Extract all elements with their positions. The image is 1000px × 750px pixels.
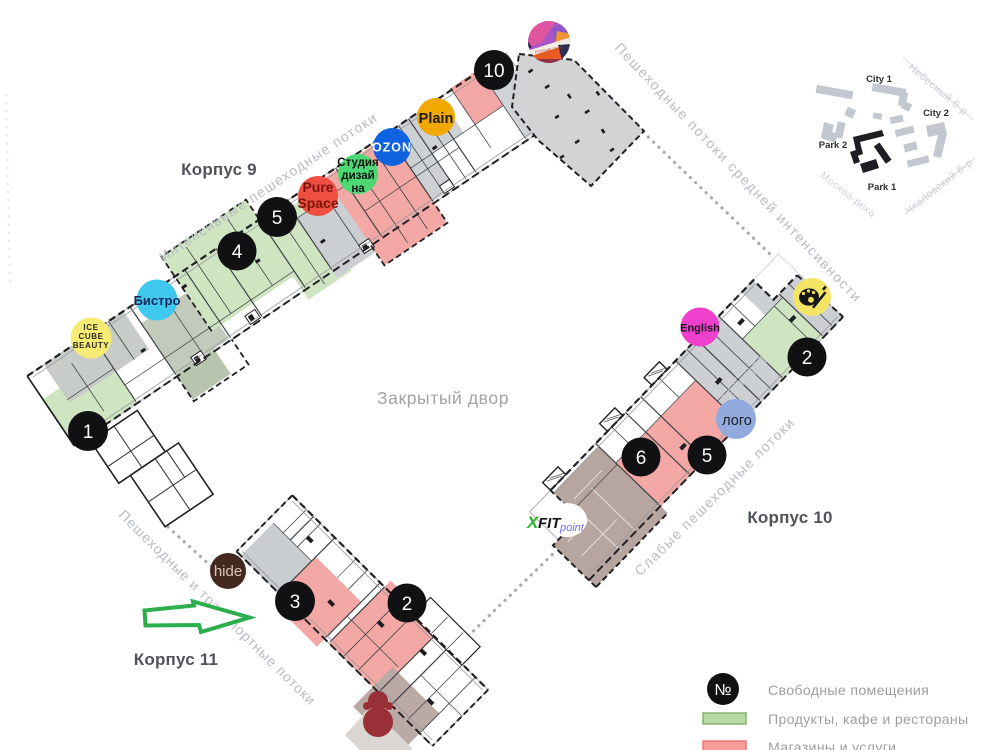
svg-text:5: 5 [272,208,283,229]
svg-text:point: point [559,522,585,534]
svg-text:Магазины и услуги: Магазины и услуги [768,740,896,750]
svg-text:Pure: Pure [302,179,333,195]
svg-text:Park 2: Park 2 [819,140,848,151]
svg-text:City 1: City 1 [866,74,893,85]
svg-text:№: № [714,682,731,699]
svg-text:Space: Space [297,195,338,211]
svg-text:FIT: FIT [538,515,562,532]
svg-text:2: 2 [402,594,413,615]
svg-text:5: 5 [702,446,713,467]
svg-text:BEAUTY: BEAUTY [73,341,110,350]
svg-text:дизай: дизай [341,170,374,182]
svg-text:English: English [680,323,720,335]
svg-text:Park 1: Park 1 [868,182,897,193]
svg-text:Plain: Plain [419,111,454,127]
svg-text:6: 6 [636,448,647,469]
svg-text:ICE: ICE [83,323,98,332]
svg-text:Бистро: Бистро [134,293,181,308]
svg-text:Свободные помещения: Свободные помещения [768,683,929,699]
svg-text:лого: лого [722,413,752,429]
svg-text:Корпус 10: Корпус 10 [747,508,832,527]
svg-text:Продукты, кафе и рестораны: Продукты, кафе и рестораны [768,712,968,728]
svg-text:на: на [351,183,365,195]
svg-text:Корпус 11: Корпус 11 [134,650,218,669]
svg-text:4: 4 [232,242,243,263]
svg-text:City 2: City 2 [923,108,949,119]
svg-text:1: 1 [83,422,94,443]
svg-text:3: 3 [290,592,301,613]
svg-text:hide: hide [214,563,242,580]
svg-text:OZON: OZON [372,141,412,155]
svg-text:2: 2 [802,348,813,369]
svg-text:Закрытый двор: Закрытый двор [377,388,509,408]
svg-text:10: 10 [483,61,504,82]
svg-text:CUBE: CUBE [78,332,103,341]
svg-text:Корпус 9: Корпус 9 [181,160,257,179]
svg-text:Студия: Студия [337,157,378,169]
